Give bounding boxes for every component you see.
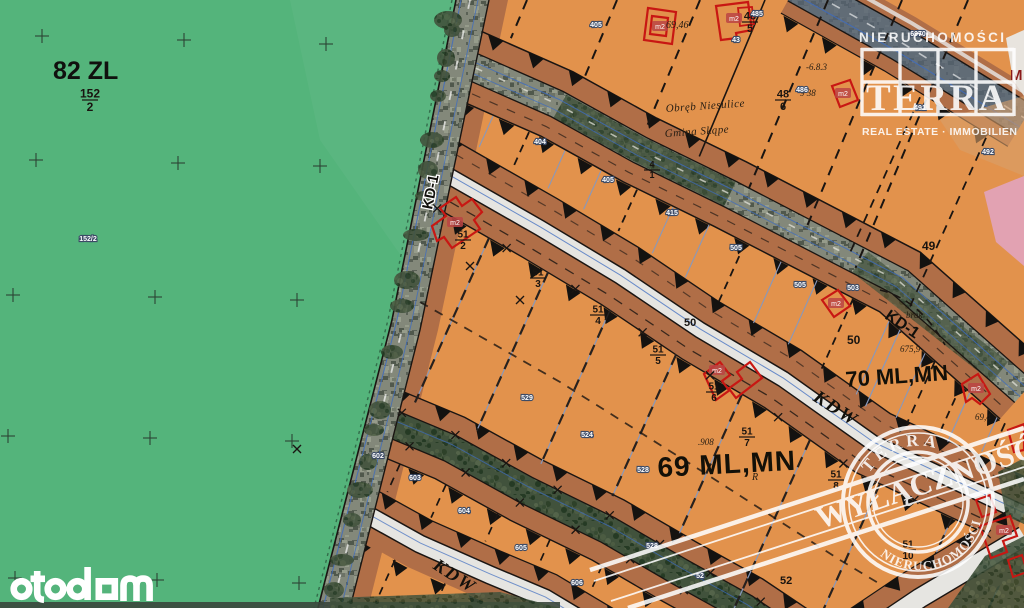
svg-text:m2: m2 [838,91,848,98]
svg-text:529: 529 [521,395,533,402]
svg-text:TERRA: TERRA [866,78,1008,119]
svg-text:602: 602 [372,453,384,460]
svg-text:51: 51 [741,427,753,438]
svg-text:51: 51 [592,305,604,316]
svg-text:7: 7 [744,438,750,449]
svg-text:49: 49 [922,239,936,253]
svg-text:505: 505 [730,245,742,252]
svg-text:51: 51 [652,345,664,356]
svg-text:152: 152 [80,87,100,101]
svg-text:m2: m2 [450,220,460,227]
svg-text:52: 52 [780,575,792,587]
svg-text:528: 528 [637,467,649,474]
svg-text:82 ZL: 82 ZL [53,57,118,85]
svg-text:6: 6 [780,101,786,113]
svg-text:605: 605 [515,545,527,552]
svg-text:48: 48 [777,89,789,101]
svg-text:152/2: 152/2 [79,236,97,243]
svg-text:5: 5 [655,356,661,367]
svg-text:51: 51 [708,382,720,393]
svg-text:2: 2 [460,241,466,252]
svg-text:405: 405 [590,22,602,29]
svg-text:m2: m2 [655,24,665,31]
svg-text:405: 405 [602,177,614,184]
svg-text:50: 50 [847,333,861,347]
svg-text:52: 52 [696,573,704,580]
svg-text:m2: m2 [999,528,1009,535]
svg-text:6: 6 [711,393,717,404]
svg-text:492: 492 [982,149,994,156]
svg-text:50: 50 [684,317,696,329]
svg-text:503: 503 [847,285,859,292]
svg-text:69,46: 69,46 [666,20,689,31]
svg-text:NIERUCHOMOŚCI: NIERUCHOMOŚCI [859,30,1006,45]
svg-text:REAL ESTATE · IMMOBILIEN: REAL ESTATE · IMMOBILIEN [862,126,1018,138]
svg-text:m2: m2 [971,386,981,393]
svg-text:-6.8.3: -6.8.3 [806,62,827,72]
svg-text:486: 486 [796,87,808,94]
svg-text:R: R [751,472,758,483]
svg-text:51: 51 [830,470,842,481]
svg-text:505: 505 [794,282,806,289]
svg-text:51: 51 [532,268,544,279]
svg-text:m2: m2 [831,301,841,308]
svg-text:485: 485 [751,11,763,18]
svg-text:69,4: 69,4 [975,412,991,422]
svg-text:5: 5 [747,23,753,35]
svg-text:51: 51 [457,230,469,241]
svg-text:675,9: 675,9 [900,344,921,354]
svg-text:606: 606 [571,580,583,587]
svg-text:603: 603 [409,475,421,482]
svg-text:brak: brak [906,310,924,320]
svg-text:43: 43 [732,37,740,44]
svg-text:604: 604 [458,508,470,515]
svg-text:524: 524 [581,432,593,439]
svg-text:m2: m2 [729,16,739,23]
svg-text:4: 4 [595,316,601,327]
svg-text:.908: .908 [698,437,714,447]
svg-text:2: 2 [87,100,94,114]
svg-text:4: 4 [649,160,654,170]
svg-text:3: 3 [535,279,541,290]
svg-text:404: 404 [534,139,546,146]
svg-text:1: 1 [649,170,654,180]
svg-text:415: 415 [666,210,678,217]
